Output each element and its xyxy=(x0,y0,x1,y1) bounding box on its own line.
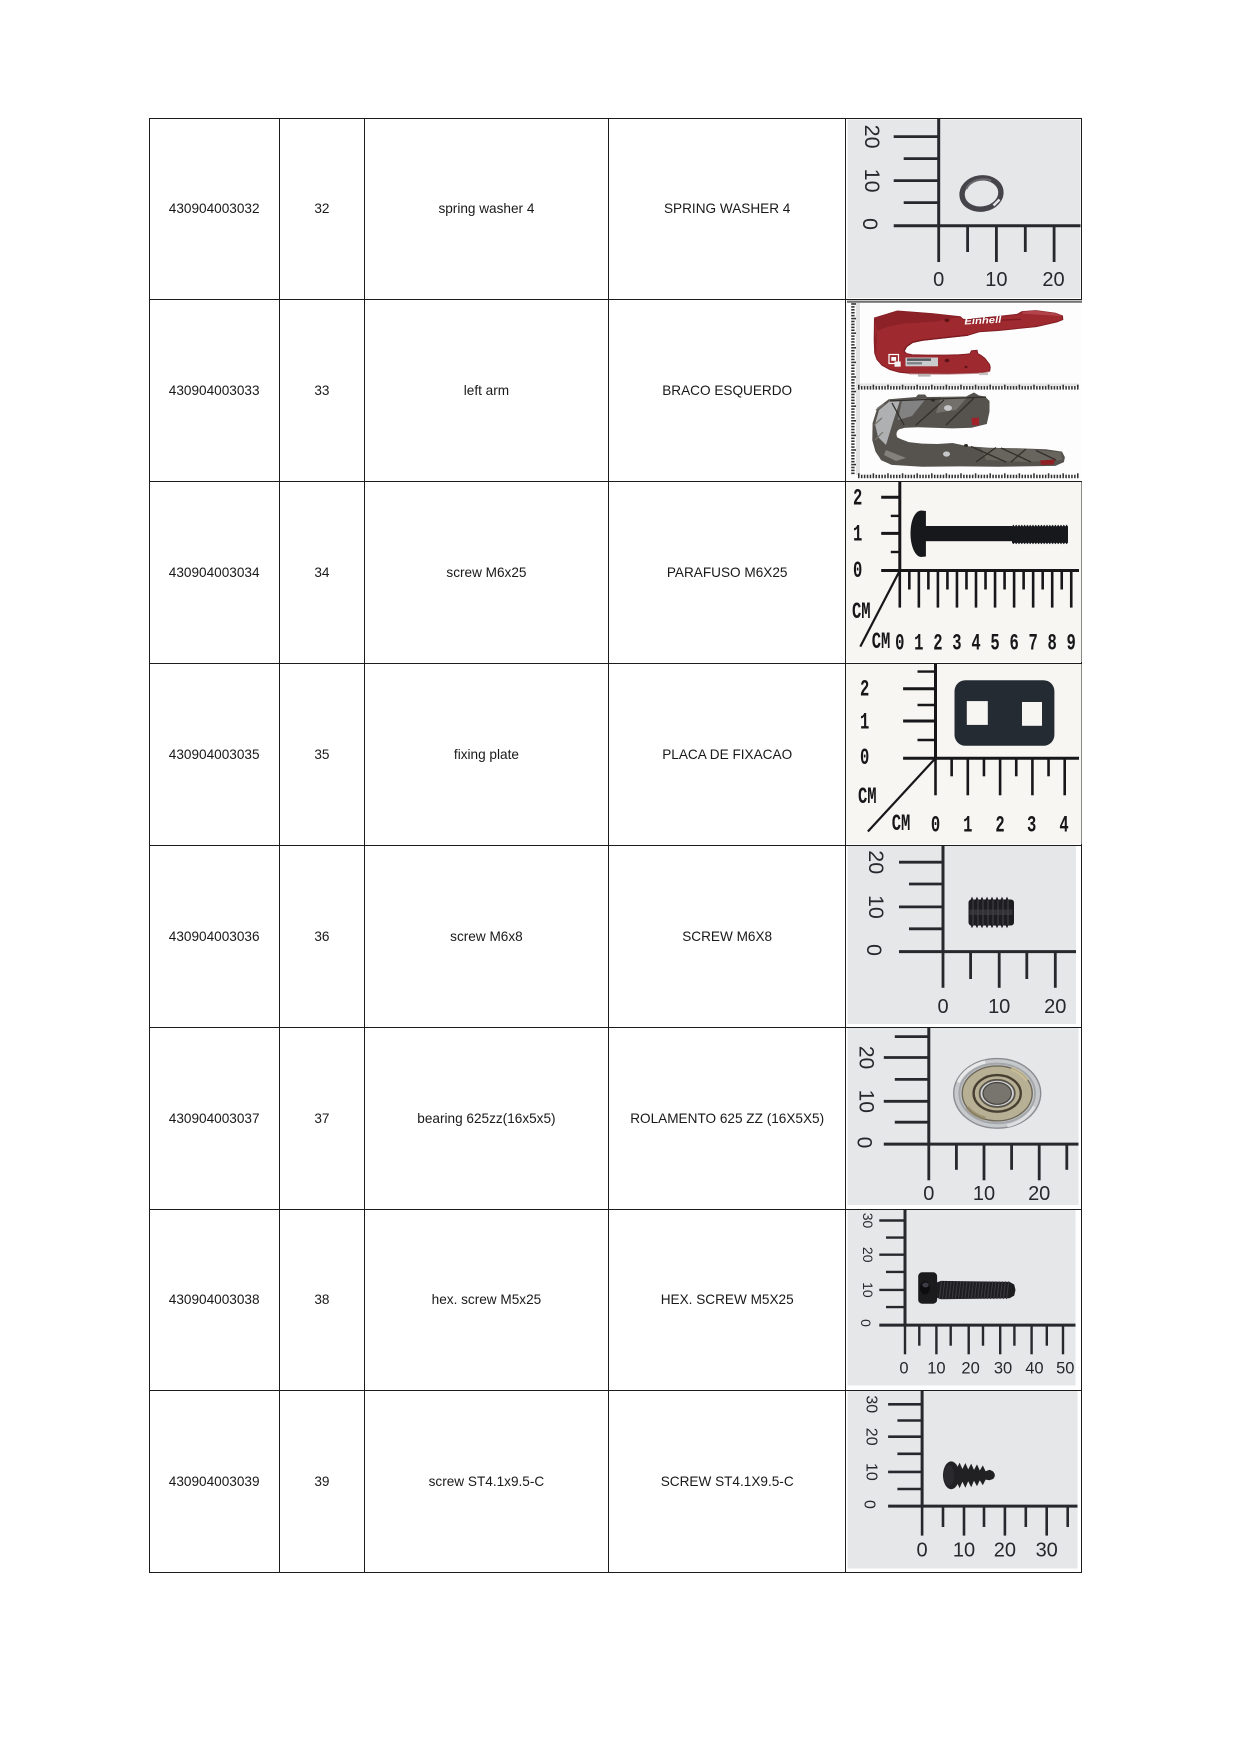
svg-text:6: 6 xyxy=(1010,630,1019,657)
svg-text:10: 10 xyxy=(986,269,1008,291)
svg-text:CM: CM xyxy=(872,628,891,655)
svg-text:8: 8 xyxy=(1048,630,1057,657)
svg-text:0: 0 xyxy=(934,269,945,291)
svg-text:20: 20 xyxy=(962,1359,980,1377)
svg-text:1: 1 xyxy=(853,521,862,548)
svg-text:10: 10 xyxy=(953,1540,975,1562)
svg-text:20: 20 xyxy=(1043,269,1065,291)
svg-text:20: 20 xyxy=(855,1046,878,1069)
svg-text:20: 20 xyxy=(864,850,888,874)
svg-text:4: 4 xyxy=(1060,811,1069,838)
svg-text:20: 20 xyxy=(1045,996,1067,1018)
svg-text:20: 20 xyxy=(860,124,884,148)
svg-text:10: 10 xyxy=(928,1359,946,1377)
svg-text:4: 4 xyxy=(972,630,981,657)
svg-text:10: 10 xyxy=(860,168,884,192)
svg-text:20: 20 xyxy=(860,1246,876,1262)
svg-text:Einhell: Einhell xyxy=(965,315,1003,328)
svg-text:0: 0 xyxy=(860,744,869,771)
svg-text:20: 20 xyxy=(994,1540,1016,1562)
svg-text:1: 1 xyxy=(915,630,924,657)
svg-text:20: 20 xyxy=(1029,1183,1051,1205)
svg-text:0: 0 xyxy=(924,1183,935,1205)
svg-text:10: 10 xyxy=(860,1282,876,1298)
svg-text:3: 3 xyxy=(1027,811,1036,838)
svg-text:1: 1 xyxy=(964,811,973,838)
svg-text:20: 20 xyxy=(863,1428,880,1446)
svg-text:3: 3 xyxy=(953,630,962,657)
svg-text:CM: CM xyxy=(852,598,871,625)
svg-text:5: 5 xyxy=(991,630,1000,657)
svg-text:0: 0 xyxy=(861,1500,878,1509)
svg-text:2: 2 xyxy=(860,675,869,702)
svg-text:0: 0 xyxy=(938,996,949,1018)
svg-text:10: 10 xyxy=(864,895,888,919)
svg-text:CM: CM xyxy=(858,783,877,810)
svg-text:0: 0 xyxy=(931,811,940,838)
svg-text:30: 30 xyxy=(1036,1540,1058,1562)
svg-text:30: 30 xyxy=(994,1359,1012,1377)
svg-text:10: 10 xyxy=(855,1089,878,1112)
svg-text:30: 30 xyxy=(860,1212,876,1228)
svg-text:0: 0 xyxy=(862,944,886,956)
svg-text:40: 40 xyxy=(1026,1359,1044,1377)
svg-text:0: 0 xyxy=(853,1136,876,1148)
svg-text:0: 0 xyxy=(858,1319,874,1327)
svg-text:2: 2 xyxy=(853,485,862,512)
svg-text:10: 10 xyxy=(989,996,1011,1018)
svg-text:0: 0 xyxy=(858,218,882,230)
svg-text:2: 2 xyxy=(996,811,1005,838)
svg-text:0: 0 xyxy=(896,630,905,657)
svg-text:0: 0 xyxy=(917,1540,928,1562)
svg-text:9: 9 xyxy=(1067,630,1076,657)
svg-text:2: 2 xyxy=(934,630,943,657)
svg-text:1: 1 xyxy=(860,708,869,735)
svg-text:CM: CM xyxy=(892,810,911,837)
svg-text:0: 0 xyxy=(900,1359,909,1377)
svg-text:0: 0 xyxy=(853,557,862,584)
svg-text:50: 50 xyxy=(1057,1359,1075,1377)
svg-text:10: 10 xyxy=(973,1183,995,1205)
svg-text:10: 10 xyxy=(863,1463,880,1481)
svg-text:30: 30 xyxy=(863,1396,880,1414)
svg-text:7: 7 xyxy=(1029,630,1038,657)
